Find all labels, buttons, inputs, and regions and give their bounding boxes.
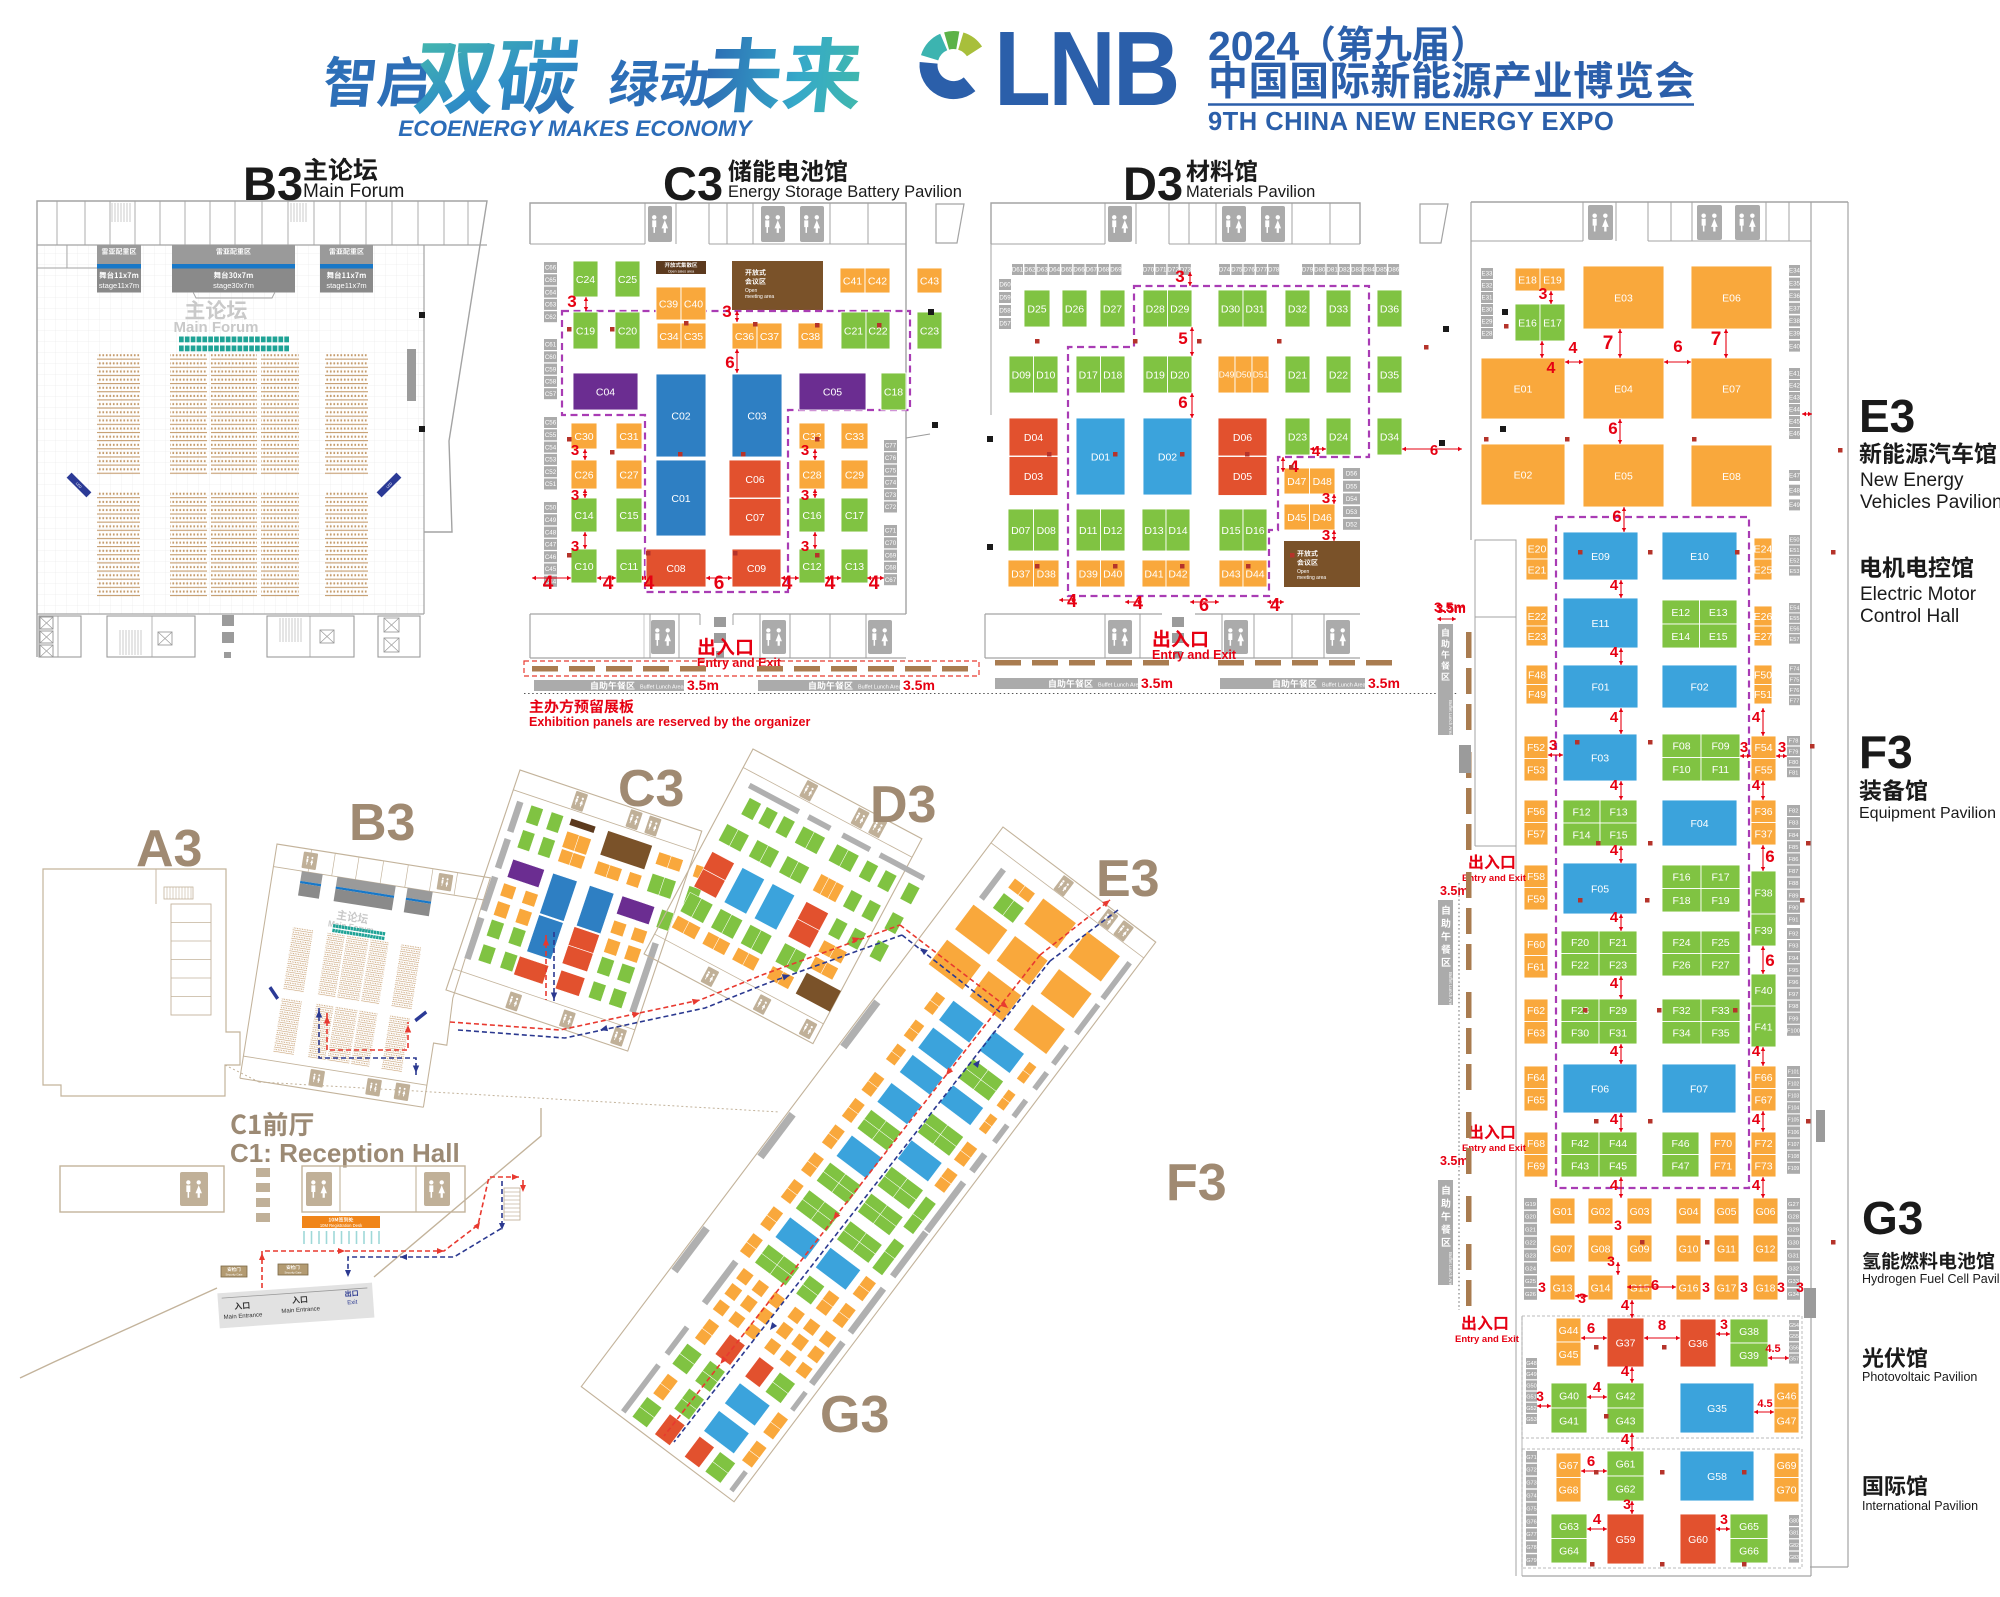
svg-text:6: 6 xyxy=(1587,1453,1595,1470)
svg-text:D37: D37 xyxy=(1011,568,1030,580)
svg-text:G36: G36 xyxy=(1688,1338,1708,1350)
svg-text:C3: C3 xyxy=(618,760,684,818)
svg-text:F55: F55 xyxy=(1754,765,1772,777)
svg-text:4: 4 xyxy=(1752,1177,1761,1194)
svg-text:E07: E07 xyxy=(1722,383,1741,395)
svg-text:D43: D43 xyxy=(1221,568,1240,580)
svg-text:D83: D83 xyxy=(1351,267,1363,274)
svg-text:E36: E36 xyxy=(1789,293,1801,300)
svg-text:G77: G77 xyxy=(1526,1532,1537,1538)
svg-text:G06: G06 xyxy=(1756,1206,1776,1218)
svg-text:F70: F70 xyxy=(1714,1138,1732,1150)
svg-text:F39: F39 xyxy=(1754,925,1772,937)
svg-text:F16: F16 xyxy=(1672,872,1690,884)
svg-text:C74: C74 xyxy=(885,480,897,487)
svg-text:G64: G64 xyxy=(1559,1546,1579,1558)
svg-text:C55: C55 xyxy=(545,432,557,439)
svg-text:F97: F97 xyxy=(1789,992,1799,998)
svg-text:4.5: 4.5 xyxy=(1765,1343,1780,1355)
svg-text:D40: D40 xyxy=(1103,568,1122,580)
svg-text:E53: E53 xyxy=(1790,569,1800,575)
svg-text:F15: F15 xyxy=(1609,829,1627,841)
svg-text:F77: F77 xyxy=(1790,699,1800,705)
svg-text:E3: E3 xyxy=(1096,850,1160,908)
svg-text:F88: F88 xyxy=(1789,881,1799,887)
svg-text:4: 4 xyxy=(1610,975,1619,992)
svg-text:3: 3 xyxy=(1740,1279,1748,1295)
svg-text:Entry and Exit: Entry and Exit xyxy=(1462,873,1527,884)
svg-text:F96: F96 xyxy=(1789,980,1799,986)
svg-text:C07: C07 xyxy=(745,512,764,524)
svg-text:F106: F106 xyxy=(1788,1130,1800,1136)
svg-text:F108: F108 xyxy=(1788,1154,1800,1160)
svg-text:C68: C68 xyxy=(885,565,897,572)
svg-text:E22: E22 xyxy=(1528,611,1547,623)
svg-text:G47: G47 xyxy=(1777,1415,1797,1427)
svg-text:6: 6 xyxy=(1765,847,1774,866)
svg-text:C54: C54 xyxy=(545,444,557,451)
svg-text:G09: G09 xyxy=(1630,1243,1650,1255)
svg-text:D39: D39 xyxy=(1079,568,1098,580)
svg-text:D50: D50 xyxy=(1236,370,1252,380)
svg-text:D67: D67 xyxy=(1086,267,1098,274)
svg-text:C49: C49 xyxy=(545,517,557,524)
svg-text:E13: E13 xyxy=(1709,607,1728,619)
svg-text:C58: C58 xyxy=(545,379,557,386)
svg-text:D05: D05 xyxy=(1233,471,1252,483)
svg-text:4: 4 xyxy=(782,573,793,594)
svg-text:F48: F48 xyxy=(1528,670,1546,682)
svg-text:3: 3 xyxy=(571,442,579,459)
svg-text:3: 3 xyxy=(801,487,809,504)
svg-text:G16: G16 xyxy=(1679,1282,1699,1294)
svg-text:4: 4 xyxy=(1752,709,1761,726)
svg-text:F67: F67 xyxy=(1754,1095,1772,1107)
svg-text:D78: D78 xyxy=(1268,267,1280,274)
svg-text:E23: E23 xyxy=(1528,631,1547,643)
svg-text:G46: G46 xyxy=(1777,1390,1797,1402)
svg-text:D12: D12 xyxy=(1103,525,1122,537)
svg-text:Materials Pavilion: Materials Pavilion xyxy=(1186,183,1315,201)
svg-text:E30: E30 xyxy=(1481,307,1493,314)
svg-text:G79: G79 xyxy=(1526,1558,1537,1564)
svg-text:G61: G61 xyxy=(1616,1458,1636,1470)
svg-text:3: 3 xyxy=(1322,527,1330,544)
svg-text:D84: D84 xyxy=(1363,267,1375,274)
svg-text:C47: C47 xyxy=(545,542,557,549)
svg-text:6: 6 xyxy=(1765,951,1774,970)
svg-text:G38: G38 xyxy=(1739,1326,1759,1338)
svg-text:C56: C56 xyxy=(545,420,557,427)
svg-text:F80: F80 xyxy=(1789,760,1799,766)
svg-text:C66: C66 xyxy=(545,265,557,272)
svg-text:2024: 2024 xyxy=(1208,23,1299,69)
svg-text:G13: G13 xyxy=(1553,1282,1573,1294)
svg-text:C33: C33 xyxy=(845,431,864,443)
svg-text:Photovoltaic Pavilion: Photovoltaic Pavilion xyxy=(1862,1370,1977,1384)
svg-text:E32: E32 xyxy=(1481,283,1493,290)
svg-text:C57: C57 xyxy=(545,391,557,398)
svg-text:3: 3 xyxy=(1623,1496,1631,1512)
svg-text:F50: F50 xyxy=(1754,670,1772,682)
svg-text:F30: F30 xyxy=(1571,1028,1589,1040)
svg-text:F19: F19 xyxy=(1711,895,1729,907)
svg-text:C41: C41 xyxy=(843,275,862,287)
svg-text:C71: C71 xyxy=(885,528,897,535)
svg-text:G73: G73 xyxy=(1526,1481,1537,1487)
svg-text:4: 4 xyxy=(1593,1379,1602,1396)
svg-text:F84: F84 xyxy=(1789,833,1800,839)
svg-text:G78: G78 xyxy=(1526,1545,1537,1551)
svg-text:D03: D03 xyxy=(1024,471,1043,483)
svg-text:F14: F14 xyxy=(1572,829,1590,841)
svg-text:F52: F52 xyxy=(1527,742,1545,754)
svg-text:E43: E43 xyxy=(1789,395,1801,402)
svg-text:E01: E01 xyxy=(1514,383,1533,395)
svg-text:E37: E37 xyxy=(1789,306,1801,313)
svg-text:E57: E57 xyxy=(1790,637,1800,643)
svg-text:F32: F32 xyxy=(1672,1005,1690,1017)
svg-text:C62: C62 xyxy=(545,314,557,321)
svg-text:F02: F02 xyxy=(1690,681,1708,693)
svg-text:A3: A3 xyxy=(136,820,202,878)
svg-text:F68: F68 xyxy=(1527,1138,1545,1150)
svg-text:C3: C3 xyxy=(663,157,723,210)
svg-text:D31: D31 xyxy=(1245,303,1264,315)
svg-text:G60: G60 xyxy=(1688,1534,1708,1546)
svg-text:G66: G66 xyxy=(1739,1546,1759,1558)
svg-text:F45: F45 xyxy=(1609,1161,1627,1173)
svg-text:C73: C73 xyxy=(885,492,897,499)
svg-text:F10: F10 xyxy=(1672,764,1690,776)
svg-text:D26: D26 xyxy=(1065,303,1084,315)
svg-text:F49: F49 xyxy=(1528,689,1546,701)
svg-text:stage11x7m: stage11x7m xyxy=(99,281,139,290)
svg-text:D06: D06 xyxy=(1233,432,1252,444)
svg-text:G54: G54 xyxy=(1789,1323,1799,1329)
svg-text:F58: F58 xyxy=(1527,871,1545,883)
svg-text:F18: F18 xyxy=(1672,895,1690,907)
svg-text:F86: F86 xyxy=(1789,857,1799,863)
svg-text:F57: F57 xyxy=(1527,829,1545,841)
svg-text:D53: D53 xyxy=(1346,509,1358,516)
svg-text:F74: F74 xyxy=(1790,667,1800,673)
svg-text:D62: D62 xyxy=(1024,267,1036,274)
svg-text:E04: E04 xyxy=(1614,383,1633,395)
svg-text:4: 4 xyxy=(825,573,836,594)
svg-text:F72: F72 xyxy=(1754,1138,1772,1150)
svg-text:E03: E03 xyxy=(1614,292,1633,304)
svg-text:3.5m: 3.5m xyxy=(903,677,935,693)
svg-text:D32: D32 xyxy=(1288,303,1307,315)
svg-text:D35: D35 xyxy=(1380,369,1399,381)
svg-text:G82: G82 xyxy=(1789,1543,1799,1549)
svg-text:C18: C18 xyxy=(884,386,903,398)
svg-text:3: 3 xyxy=(1539,286,1548,303)
svg-text:4: 4 xyxy=(1610,777,1619,794)
svg-text:6: 6 xyxy=(725,353,734,372)
svg-text:G11: G11 xyxy=(1717,1243,1736,1255)
svg-text:Buffet Lunch Area: Buffet Lunch Area xyxy=(640,685,685,691)
svg-text:D61: D61 xyxy=(1012,267,1024,274)
svg-text:3.5m: 3.5m xyxy=(1141,675,1173,691)
svg-text:F54: F54 xyxy=(1754,742,1772,754)
svg-text:F60: F60 xyxy=(1527,939,1545,951)
svg-text:C63: C63 xyxy=(545,302,557,309)
svg-text:C16: C16 xyxy=(802,510,821,522)
svg-text:7: 7 xyxy=(1711,329,1722,350)
svg-text:F89: F89 xyxy=(1789,893,1799,899)
svg-text:F98: F98 xyxy=(1789,1004,1799,1010)
svg-text:F107: F107 xyxy=(1788,1142,1800,1148)
svg-text:Security Gate: Security Gate xyxy=(285,1271,302,1275)
svg-text:E06: E06 xyxy=(1722,292,1741,304)
svg-text:F56: F56 xyxy=(1527,806,1545,818)
svg-text:F29: F29 xyxy=(1609,1005,1627,1017)
svg-text:4: 4 xyxy=(1752,1111,1761,1128)
svg-text:D20: D20 xyxy=(1170,369,1189,381)
svg-text:D48: D48 xyxy=(1313,476,1332,488)
svg-text:E19: E19 xyxy=(1543,274,1562,286)
svg-text:C67: C67 xyxy=(885,577,897,584)
svg-text:D44: D44 xyxy=(1245,568,1264,580)
svg-text:E54: E54 xyxy=(1790,606,1800,612)
svg-text:E34: E34 xyxy=(1789,268,1801,275)
svg-text:6: 6 xyxy=(1651,1277,1659,1294)
svg-text:F37: F37 xyxy=(1754,829,1772,841)
svg-text:D36: D36 xyxy=(1380,303,1399,315)
svg-text:Electric Motor: Electric Motor xyxy=(1860,584,1977,605)
svg-text:D18: D18 xyxy=(1103,369,1122,381)
svg-text:E46: E46 xyxy=(1789,431,1801,438)
svg-text:4: 4 xyxy=(1593,1511,1602,1528)
svg-text:3.5m: 3.5m xyxy=(1440,1154,1469,1168)
svg-text:G35: G35 xyxy=(1707,1403,1727,1415)
svg-text:D04: D04 xyxy=(1024,432,1043,444)
svg-text:G55: G55 xyxy=(1789,1334,1799,1340)
svg-text:F61: F61 xyxy=(1527,962,1545,974)
svg-text:D19: D19 xyxy=(1146,369,1165,381)
svg-text:6: 6 xyxy=(1587,1320,1595,1337)
svg-text:F69: F69 xyxy=(1527,1161,1545,1173)
svg-text:G40: G40 xyxy=(1559,1390,1579,1402)
svg-text:C14: C14 xyxy=(574,510,593,522)
svg-text:E14: E14 xyxy=(1671,631,1690,643)
svg-text:E21: E21 xyxy=(1528,564,1547,576)
svg-text:Exit: Exit xyxy=(347,1300,358,1307)
svg-text:4: 4 xyxy=(1621,1363,1630,1380)
svg-text:E17: E17 xyxy=(1543,317,1562,329)
svg-text:F07: F07 xyxy=(1690,1083,1708,1095)
svg-text:E25: E25 xyxy=(1754,564,1773,576)
svg-text:F71: F71 xyxy=(1714,1161,1732,1173)
svg-text:F99: F99 xyxy=(1789,1016,1799,1022)
svg-text:D81: D81 xyxy=(1326,267,1338,274)
svg-text:C30: C30 xyxy=(574,431,593,443)
svg-text:D41: D41 xyxy=(1144,568,1163,580)
svg-text:F27: F27 xyxy=(1711,960,1729,972)
svg-text:3: 3 xyxy=(1720,1316,1728,1332)
svg-text:D21: D21 xyxy=(1288,369,1307,381)
svg-text:D11: D11 xyxy=(1079,525,1098,537)
svg-text:Hydrogen Fuel Cell Pavilion: Hydrogen Fuel Cell Pavilion xyxy=(1862,1272,2000,1286)
svg-text:4.5: 4.5 xyxy=(1757,1398,1772,1410)
svg-text:C11: C11 xyxy=(620,561,639,573)
svg-text:4: 4 xyxy=(1610,644,1619,661)
svg-text:E33: E33 xyxy=(1481,271,1493,278)
svg-text:4: 4 xyxy=(1610,909,1619,926)
svg-text:3: 3 xyxy=(571,538,579,555)
svg-text:F90: F90 xyxy=(1789,905,1799,911)
svg-text:3.5m: 3.5m xyxy=(1440,884,1469,898)
svg-text:D69: D69 xyxy=(1110,267,1122,274)
svg-text:C69: C69 xyxy=(885,552,897,559)
svg-text:G37: G37 xyxy=(1616,1337,1636,1349)
svg-text:G27: G27 xyxy=(1788,1202,1799,1208)
svg-text:4: 4 xyxy=(1610,1043,1619,1060)
svg-text:C21: C21 xyxy=(844,325,863,337)
svg-text:G72: G72 xyxy=(1526,1468,1537,1474)
svg-text:stage30x7m: stage30x7m xyxy=(213,281,254,290)
svg-text:G52: G52 xyxy=(1526,1406,1537,1412)
svg-text:stage11x7m: stage11x7m xyxy=(326,281,366,290)
svg-text:3: 3 xyxy=(801,538,809,555)
svg-text:4: 4 xyxy=(644,573,655,594)
svg-text:D3: D3 xyxy=(1123,157,1183,210)
svg-text:G41: G41 xyxy=(1559,1415,1579,1427)
svg-text:G31: G31 xyxy=(1788,1253,1799,1259)
svg-text:C64: C64 xyxy=(545,289,557,296)
svg-text:G48: G48 xyxy=(1526,1361,1537,1367)
svg-text:G15: G15 xyxy=(1630,1282,1650,1294)
svg-text:3: 3 xyxy=(1536,1388,1544,1404)
svg-text:G29: G29 xyxy=(1788,1228,1799,1234)
svg-text:C10: C10 xyxy=(574,561,593,573)
svg-text:D07: D07 xyxy=(1011,525,1030,537)
svg-text:D70: D70 xyxy=(1143,267,1155,274)
svg-text:C28: C28 xyxy=(802,469,821,481)
svg-text:D77: D77 xyxy=(1256,267,1268,274)
svg-text:meeting area: meeting area xyxy=(745,294,774,300)
svg-text:G58: G58 xyxy=(1707,1471,1727,1483)
svg-text:10M Registration Desk: 10M Registration Desk xyxy=(320,1223,363,1228)
svg-text:E08: E08 xyxy=(1722,471,1741,483)
svg-text:3: 3 xyxy=(1549,737,1557,754)
svg-text:E45: E45 xyxy=(1789,419,1801,426)
svg-text:E48: E48 xyxy=(1789,487,1801,494)
svg-text:C37: C37 xyxy=(760,331,779,343)
svg-text:E05: E05 xyxy=(1614,470,1633,482)
svg-text:6: 6 xyxy=(1199,595,1209,615)
svg-text:D34: D34 xyxy=(1380,431,1399,443)
svg-text:D14: D14 xyxy=(1168,525,1187,537)
svg-text:F20: F20 xyxy=(1571,937,1589,949)
svg-text:G67: G67 xyxy=(1559,1460,1579,1472)
svg-text:C20: C20 xyxy=(618,325,637,337)
svg-text:F25: F25 xyxy=(1711,937,1729,949)
svg-text:F93: F93 xyxy=(1789,944,1799,950)
svg-text:4: 4 xyxy=(1610,1177,1619,1194)
svg-text:7: 7 xyxy=(1603,333,1614,354)
svg-text:G45: G45 xyxy=(1559,1349,1579,1361)
svg-text:F3: F3 xyxy=(1166,1154,1227,1212)
svg-text:C13: C13 xyxy=(845,561,864,573)
svg-text:F24: F24 xyxy=(1672,937,1690,949)
svg-text:3: 3 xyxy=(1702,1279,1710,1295)
svg-text:G21: G21 xyxy=(1525,1228,1536,1234)
svg-text:C77: C77 xyxy=(885,443,897,450)
svg-text:C24: C24 xyxy=(576,274,595,286)
svg-text:G56: G56 xyxy=(1789,1345,1799,1351)
svg-text:F78: F78 xyxy=(1789,739,1799,745)
svg-text:F73: F73 xyxy=(1754,1161,1772,1173)
svg-text:C70: C70 xyxy=(885,540,897,547)
svg-text:4: 4 xyxy=(1621,1431,1630,1448)
svg-text:G10: G10 xyxy=(1679,1243,1699,1255)
svg-text:F36: F36 xyxy=(1754,806,1772,818)
svg-text:Buffet Lunch Area: Buffet Lunch Area xyxy=(1448,972,1453,1008)
svg-text:3: 3 xyxy=(1796,1279,1804,1295)
svg-text:G17: G17 xyxy=(1717,1282,1737,1294)
svg-text:G76: G76 xyxy=(1526,1519,1537,1525)
svg-text:G28: G28 xyxy=(1788,1215,1799,1221)
svg-text:LNB: LNB xyxy=(994,11,1178,129)
svg-text:6: 6 xyxy=(1673,337,1682,356)
svg-text:G62: G62 xyxy=(1616,1483,1636,1495)
svg-text:6: 6 xyxy=(1178,393,1187,412)
svg-text:G70: G70 xyxy=(1777,1485,1797,1497)
svg-text:4: 4 xyxy=(1621,1297,1630,1314)
svg-text:F03: F03 xyxy=(1591,752,1609,764)
svg-text:C76: C76 xyxy=(885,455,897,462)
svg-text:G22: G22 xyxy=(1525,1241,1536,1247)
svg-text:D52: D52 xyxy=(1346,522,1358,529)
svg-text:D10: D10 xyxy=(1036,369,1055,381)
svg-text:meeting area: meeting area xyxy=(1297,575,1326,581)
svg-text:D08: D08 xyxy=(1037,525,1056,537)
svg-text:G83: G83 xyxy=(1789,1555,1799,1561)
svg-text:G07: G07 xyxy=(1553,1243,1573,1255)
svg-text:ECOENERGY MAKES ECONOMY: ECOENERGY MAKES ECONOMY xyxy=(398,116,753,141)
svg-text:G3: G3 xyxy=(1862,1192,1923,1244)
svg-text:D58: D58 xyxy=(999,308,1011,315)
svg-text:C36: C36 xyxy=(735,331,754,343)
svg-text:4: 4 xyxy=(1270,595,1280,615)
svg-text:C01: C01 xyxy=(671,493,690,505)
svg-text:F76: F76 xyxy=(1790,688,1800,694)
svg-text:4: 4 xyxy=(1610,709,1619,726)
svg-text:6: 6 xyxy=(1430,442,1438,459)
svg-text:F51: F51 xyxy=(1754,689,1772,701)
svg-text:Security Gate: Security Gate xyxy=(226,1273,243,1277)
svg-text:F41: F41 xyxy=(1754,1021,1772,1033)
svg-text:Main Forum: Main Forum xyxy=(303,181,404,202)
svg-text:E56: E56 xyxy=(1790,627,1800,633)
svg-text:F87: F87 xyxy=(1789,869,1799,875)
svg-text:D68: D68 xyxy=(1098,267,1110,274)
svg-text:C40: C40 xyxy=(684,298,703,310)
svg-text:C43: C43 xyxy=(920,275,939,287)
svg-text:G44: G44 xyxy=(1559,1325,1579,1337)
svg-text:E41: E41 xyxy=(1789,371,1801,378)
svg-text:G57: G57 xyxy=(1789,1356,1799,1362)
svg-text:E15: E15 xyxy=(1709,631,1728,643)
svg-text:F66: F66 xyxy=(1754,1072,1772,1084)
svg-text:Buffet Lunch Area: Buffet Lunch Area xyxy=(1322,683,1367,689)
svg-text:D02: D02 xyxy=(1158,451,1177,463)
svg-text:C48: C48 xyxy=(545,529,557,536)
svg-text:D56: D56 xyxy=(1346,471,1358,478)
